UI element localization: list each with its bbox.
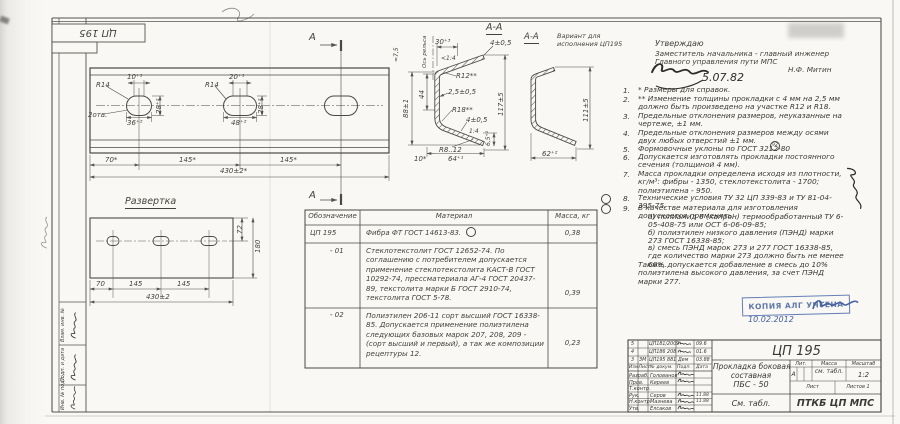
dim-180: 180	[255, 240, 262, 253]
note-num: 4.	[614, 129, 630, 138]
rev-date: 01.6	[696, 350, 707, 355]
table-row-code: - 01	[330, 248, 344, 255]
dim-117: 117±5	[498, 92, 505, 116]
dim-r14-right: R14	[205, 82, 219, 89]
top-left-doc-stamp: ЦП 195	[55, 27, 141, 37]
note-num: 1.	[614, 86, 630, 95]
dim-145-flat-b: 145	[177, 281, 190, 288]
cut-label-bottom: А	[309, 191, 316, 201]
col-podp: Подп.	[677, 365, 691, 370]
table-header-material: Материал	[360, 213, 548, 220]
scale-label: Масштаб	[846, 361, 881, 367]
note-tail: Также, допускается добавление в смесь до…	[638, 261, 846, 286]
margin-box-vzam-inv: Взам. инв. №	[61, 308, 66, 342]
material-reference: См. табл.	[712, 399, 790, 408]
rev-list: ЗМ	[639, 358, 646, 363]
table-row-code: - 02	[330, 312, 344, 319]
sheets-label: Листов 1	[835, 384, 881, 390]
flat-pattern-title: Развертка	[125, 197, 176, 209]
note-num: 8.	[614, 194, 630, 203]
dim-88: 88±1	[403, 99, 410, 118]
table-header-designation: Обозначение	[306, 213, 359, 220]
rev-izm: 4	[631, 350, 634, 355]
staff-date: 11.88	[696, 393, 709, 398]
titleblock-doc-number: ЦП 195	[712, 344, 881, 359]
dim-6-5: 6,5⁺²	[486, 131, 492, 146]
rail-axis-label: Ось рельса	[423, 36, 429, 68]
blueprint-sheet: ЦП 195 R14 2отв. 10⁺¹ 28⁺² 36⁺² R14 20⁺¹…	[0, 0, 900, 424]
rev-date: 03.88	[696, 358, 710, 363]
staff-name: Киреев	[650, 380, 669, 386]
margin-box-inv-podl: Инв. № подл.	[61, 376, 66, 411]
variant-subtitle-2: исполнения ЦП195	[557, 41, 622, 48]
titleblock-name-1: Прокладка боковая	[713, 362, 789, 371]
flat-pattern-view	[90, 218, 257, 306]
dim-70: 70*	[105, 157, 117, 164]
dim-145-a: 145*	[179, 157, 196, 164]
dim-28-left: 28⁺²	[156, 99, 163, 114]
note-num: 6.	[614, 153, 630, 162]
organization: ПТКБ ЦП МПС	[790, 398, 881, 409]
dim-145-b: 145*	[280, 157, 297, 164]
note-num: 3.	[614, 112, 630, 121]
variant-profile	[531, 68, 576, 146]
dim-430-flat: 430±2	[146, 294, 170, 301]
lit-label: Лит.	[790, 361, 812, 367]
table-row-code: ЦП 195	[310, 230, 336, 237]
staff-name: Серов	[650, 393, 666, 399]
dim-48: 48⁺²	[231, 120, 246, 127]
table-row-mass: 0,38	[548, 230, 597, 237]
col-izm: Изм	[629, 365, 638, 370]
note-ref-mark	[601, 204, 611, 214]
dim-430: 430±2*	[220, 168, 247, 175]
approval-name: Н.Ф. Митин	[788, 66, 832, 73]
dim-145-flat-a: 145	[129, 281, 142, 288]
staff-role: Т.контр.	[629, 386, 651, 392]
dim-10-star: 10*	[414, 156, 426, 163]
rev-izm: 3	[631, 358, 634, 363]
dim-r8-12: R8..12	[439, 147, 462, 154]
staff-name: Мазнева	[650, 399, 672, 405]
approval-date: 5.07.82	[702, 72, 744, 83]
note-ref-mark: 92	[770, 141, 780, 151]
titleblock-name-2: составная	[713, 371, 789, 380]
dim-r14-left: R14	[96, 82, 110, 89]
staff-name: Елсаков	[650, 406, 671, 412]
note-text: Допускается изготовлять прокладки постоя…	[638, 153, 846, 170]
dim-4-bottom: 4±0,5	[466, 117, 487, 124]
table-row-material: Стеклотекстолит ГОСТ 12652-74. По соглаш…	[366, 246, 546, 302]
col-list: Лист	[639, 365, 651, 370]
slope-bottom: 1:4	[469, 129, 479, 135]
dim-7-5: ≈7,5	[394, 47, 400, 62]
staff-role: Рук.	[629, 393, 640, 399]
cut-label-top: А	[309, 33, 316, 43]
section-title: А-А	[486, 23, 502, 35]
dim-r18: R18**	[452, 107, 473, 114]
dim-44: 44	[419, 90, 426, 99]
col-data: Дата	[696, 365, 708, 370]
copy-stamp-date: 10.02.2012	[748, 316, 794, 324]
table-row-mass: 0,39	[548, 290, 597, 297]
table-row-material: Полиэтилен 206-11 сорт высший ГОСТ 16338…	[366, 311, 546, 358]
slope-top: <1:4	[441, 56, 456, 62]
scale-value: 1:2	[846, 371, 881, 379]
rev-doc: ЦП186 208	[649, 350, 676, 355]
note-ref-mark	[601, 194, 611, 204]
staff-date: 11.88	[696, 399, 709, 404]
note-text: Предельные отклонения размеров, неуказан…	[638, 112, 846, 129]
note-text: ** Изменение толщины прокладки с 4 мм на…	[638, 95, 846, 112]
copy-accounted-stamp: КОПИЯ АЛГ УЧТЕНА	[742, 295, 850, 317]
note-num: 7.	[614, 170, 630, 179]
note-num: 9.	[614, 204, 630, 213]
col-doc: № докум.	[650, 365, 673, 370]
rev-doc: ЦП181/2009	[649, 342, 679, 347]
dim-30: 30⁺³	[435, 39, 450, 46]
dim-10: 10⁺¹	[127, 74, 142, 81]
rev-date: 09.6	[696, 342, 707, 347]
note-num: 2.	[614, 95, 630, 104]
table-header-mass: Масса, кг	[548, 213, 597, 220]
note-ref-mark	[466, 227, 476, 237]
dim-r12: R12**	[456, 73, 477, 80]
dim-28-right: 28⁺²	[258, 99, 265, 114]
rev-podp: Дем	[678, 358, 688, 363]
staff-role: Пров.	[629, 380, 644, 386]
mass-label: Масса	[812, 361, 846, 367]
dim-4-top: 4±0,5	[490, 40, 511, 47]
rev-izm: 5	[631, 342, 634, 347]
staff-role: Разраб.	[629, 373, 649, 379]
dim-2-5: 2,5±0,5	[448, 89, 476, 96]
note-text: Масса прокладки определена исходя из пло…	[638, 170, 846, 195]
dim-72: 72	[237, 225, 244, 234]
staff-role: Н.контр.	[629, 399, 651, 405]
dim-36: 36⁺²	[127, 120, 142, 127]
staff-role: Утв.	[629, 406, 640, 412]
approval-line-3: Главного управления пути МПС	[655, 58, 778, 65]
mass-value: см. табл.	[812, 369, 846, 376]
variant-title: А-А	[524, 33, 539, 44]
titleblock-name-3: ПБС - 50	[713, 380, 789, 389]
dim-70-flat: 70	[96, 281, 105, 288]
lit-value: А	[790, 371, 797, 378]
dim-111: 111±5	[583, 98, 590, 122]
dim-64: 64⁺¹	[448, 156, 463, 163]
staff-name: Голованов	[650, 373, 677, 379]
table-row-mass: 0,23	[548, 340, 597, 347]
sheet-label: Лист	[790, 384, 835, 390]
dim-62: 62⁺²	[542, 151, 557, 158]
table-row-material: Фибра ФТ ГОСТ 14613-83.	[366, 230, 461, 237]
dim-holes-count: 2отв.	[88, 112, 107, 119]
variant-subtitle-1: Вариант для	[557, 33, 600, 40]
dim-20: 20⁺¹	[229, 74, 244, 81]
rev-doc: ЦП195 881	[649, 358, 676, 363]
approval-line-1: Утверждаю	[655, 40, 704, 48]
